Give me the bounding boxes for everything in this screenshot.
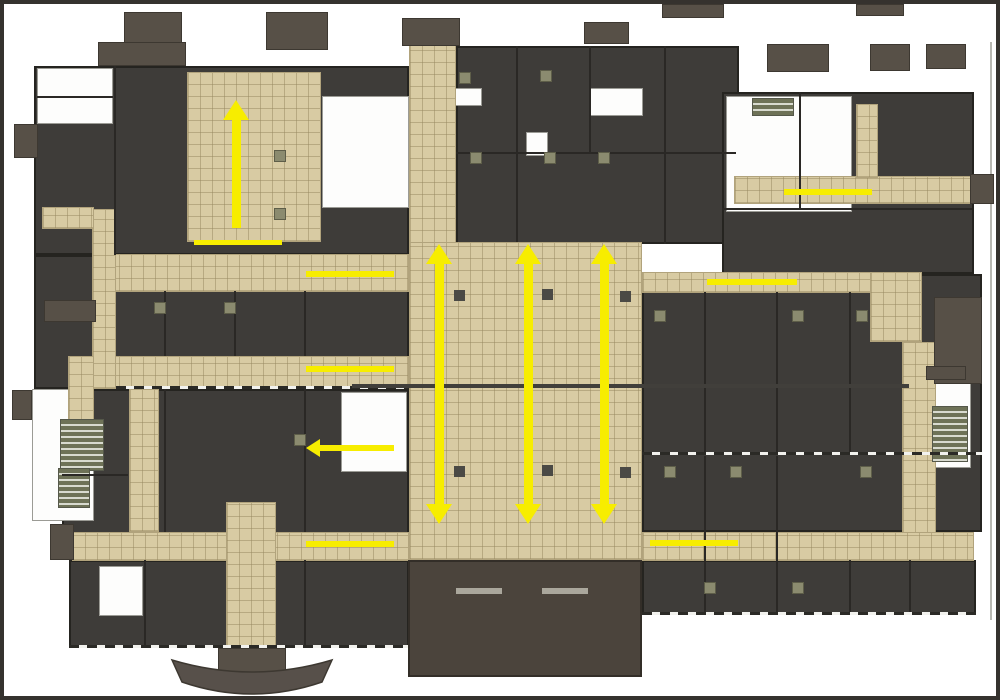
column xyxy=(224,302,236,314)
flow-line-right-corridor xyxy=(707,279,797,285)
roof-stub xyxy=(767,44,829,72)
column xyxy=(664,466,676,478)
corridor-top-right-stub xyxy=(856,104,878,178)
column xyxy=(274,150,286,162)
corridor-left-connector xyxy=(92,209,116,389)
dashed-wall xyxy=(642,452,982,455)
flow-arrow-left-3 xyxy=(318,445,394,451)
flow-arrow-atrium-2-head xyxy=(515,244,541,264)
column xyxy=(860,466,872,478)
flow-arrow-atrium-1-head xyxy=(426,244,452,264)
corridor-top-vertical xyxy=(409,40,456,244)
stair-left-a xyxy=(60,419,104,471)
interior-wall xyxy=(776,292,778,454)
corridor-left-stub xyxy=(42,207,94,229)
lobby-bench xyxy=(542,588,588,594)
corridor-right-jog xyxy=(870,272,922,342)
roof-stub xyxy=(662,4,724,18)
interior-wall xyxy=(776,456,778,560)
roof-stub xyxy=(402,18,460,46)
interior-wall xyxy=(909,560,911,615)
column xyxy=(704,582,716,594)
wing-bottom-right xyxy=(642,560,976,615)
interior-wall xyxy=(849,292,851,454)
interior-wall xyxy=(234,291,236,356)
interior-wall xyxy=(664,46,666,244)
column xyxy=(792,310,804,322)
property-line xyxy=(990,42,992,620)
roof-stub xyxy=(50,524,74,560)
flow-arrow-atrium-3-head xyxy=(591,504,617,524)
main-entrance-lobby xyxy=(408,560,642,677)
flow-arrow-atrium-3-head xyxy=(591,244,617,264)
interior-wall xyxy=(304,389,306,532)
column xyxy=(598,152,610,164)
interior-wall xyxy=(704,292,706,454)
flow-arrow-atrium-2-head xyxy=(515,504,541,524)
floor-plan-canvas xyxy=(4,4,996,696)
flow-line-upper-left xyxy=(194,240,282,245)
column xyxy=(654,310,666,322)
interior-wall xyxy=(37,96,113,98)
flow-line-bottom-left xyxy=(306,541,394,547)
roof-stub xyxy=(970,174,994,204)
column xyxy=(542,289,553,300)
column xyxy=(792,582,804,594)
roof-stub xyxy=(926,44,966,69)
flow-arrow-atrium-1 xyxy=(435,262,444,506)
canopy-fan-shape xyxy=(172,660,332,694)
roof-stub xyxy=(926,366,966,380)
roof-stub xyxy=(870,44,910,71)
flow-arrow-atrium-3 xyxy=(600,262,609,506)
flow-arrow-up-upper-left xyxy=(232,118,241,228)
interior-wall xyxy=(722,208,972,210)
rooms-bottom-left-small xyxy=(99,566,143,616)
flow-line-left-1 xyxy=(306,271,394,277)
column xyxy=(454,290,465,301)
flow-arrow-up-upper-left-head xyxy=(223,100,249,120)
interior-wall xyxy=(144,560,146,648)
column xyxy=(454,466,465,477)
column xyxy=(274,208,286,220)
column xyxy=(459,72,471,84)
flow-arrow-atrium-2 xyxy=(524,262,533,506)
corridor-midleft-vertical xyxy=(129,389,159,532)
rooms-left-center xyxy=(322,96,409,208)
floor-plan-frame xyxy=(0,0,1000,700)
flow-arrow-atrium-1-head xyxy=(426,504,452,524)
roof-stub xyxy=(14,124,38,158)
hall-upper-left xyxy=(187,72,321,242)
interior-wall xyxy=(849,560,851,615)
flow-line-top-right xyxy=(784,189,872,195)
interior-wall xyxy=(456,152,736,154)
interior-wall xyxy=(589,46,591,154)
column xyxy=(470,152,482,164)
column xyxy=(730,466,742,478)
column xyxy=(154,302,166,314)
corridor-entry-vertical xyxy=(226,502,276,650)
column xyxy=(620,291,631,302)
flow-line-left-2 xyxy=(306,366,394,372)
column xyxy=(294,434,306,446)
interior-wall xyxy=(164,291,166,356)
roof-stub xyxy=(12,390,32,420)
lobby-bench xyxy=(456,588,502,594)
interior-wall xyxy=(114,66,116,255)
roof-stub xyxy=(44,300,96,322)
entrance-canopy xyxy=(164,644,340,698)
wing-top-center xyxy=(456,46,739,244)
roof-stub xyxy=(584,22,629,44)
interior-wall xyxy=(62,474,128,476)
dashed-wall xyxy=(642,612,976,615)
rooms-left-of-atrium xyxy=(341,392,407,472)
roof-stub xyxy=(98,42,186,66)
column xyxy=(620,467,631,478)
flow-line-bottom-right xyxy=(650,540,738,546)
interior-wall xyxy=(304,560,306,648)
column xyxy=(856,310,868,322)
interior-wall xyxy=(516,46,518,242)
column xyxy=(544,152,556,164)
interior-wall xyxy=(304,291,306,356)
roof-stub xyxy=(856,4,904,16)
column xyxy=(542,465,553,476)
room-top-center-a xyxy=(589,88,643,116)
stair-top-right xyxy=(752,98,794,116)
interior-wall xyxy=(776,560,778,615)
roof-stub xyxy=(266,12,328,50)
room-top-center-b xyxy=(454,88,482,106)
column xyxy=(540,70,552,82)
interior-wall xyxy=(164,389,166,532)
corridor-bottom-right xyxy=(642,532,974,561)
roof-stub xyxy=(124,12,182,44)
